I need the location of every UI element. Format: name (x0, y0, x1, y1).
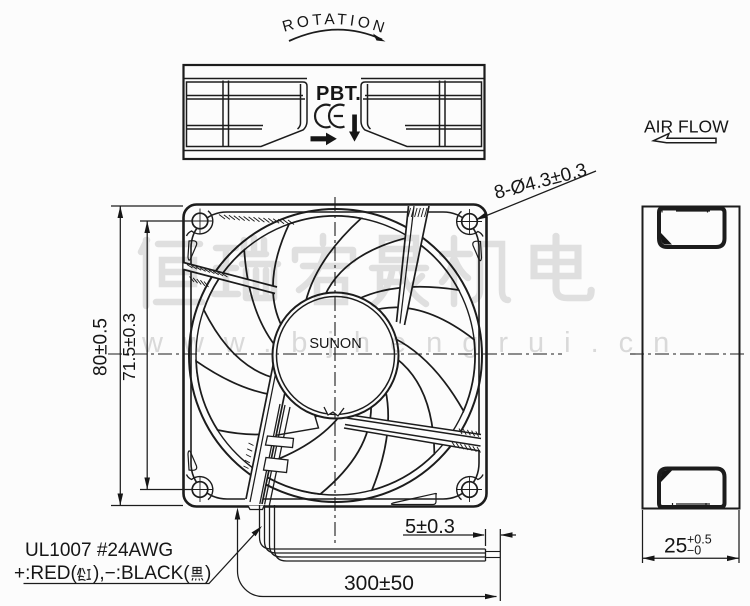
svg-text:80±0.5: 80±0.5 (91, 318, 112, 376)
svg-text:71.5±0.3: 71.5±0.3 (119, 313, 139, 381)
svg-text:UL1007 #24AWG: UL1007 #24AWG (25, 540, 173, 561)
svg-text:+:RED(: +:RED( (14, 563, 77, 584)
svg-text:−0: −0 (687, 544, 701, 558)
svg-text:),−:BLACK(: ),−:BLACK( (93, 563, 190, 584)
svg-text:PBT.: PBT. (316, 83, 361, 105)
svg-text:www.bjhengrui.cn: www.bjhengrui.cn (141, 327, 689, 359)
svg-text:): ) (205, 563, 211, 584)
svg-text:AIR FLOW: AIR FLOW (644, 117, 729, 137)
svg-text:25: 25 (664, 535, 687, 558)
svg-text:300±50: 300±50 (344, 572, 414, 595)
